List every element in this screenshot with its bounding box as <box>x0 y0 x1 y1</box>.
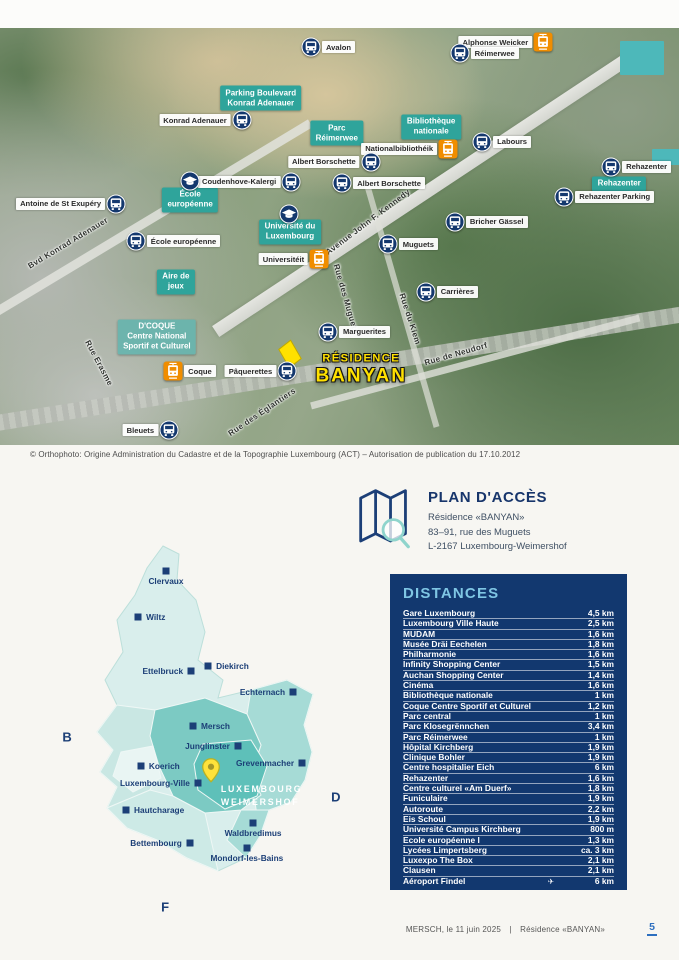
stop-label: Muguets <box>399 238 438 250</box>
highlight-line2: WEIMERSHOF <box>221 796 303 809</box>
distance-value: 1,2 km <box>568 702 614 711</box>
distance-row: Clausen2,1 km <box>403 866 614 876</box>
distance-value: 1,9 km <box>568 794 614 803</box>
distance-row: Centre culturel «Am Duerf»1,8 km <box>403 784 614 794</box>
distance-place: Musée Dräi Eechelen <box>403 640 568 649</box>
distance-value: 1,3 km <box>568 836 614 845</box>
distance-row: Parc Klosegrënnchen3,4 km <box>403 722 614 732</box>
city-label: Grevenmacher <box>236 758 294 768</box>
distance-row: Funiculaire1,9 km <box>403 794 614 804</box>
city-square-icon <box>188 667 195 674</box>
city-label: Mondorf-les-Bains <box>210 853 283 863</box>
school-stop-icon <box>280 204 299 223</box>
distance-place: Parc Klosegrënnchen <box>403 722 568 731</box>
city-label: Koerich <box>149 761 180 771</box>
distance-place: Luxexpo The Box <box>403 856 568 865</box>
residence-line1: RÉSIDENCE <box>315 352 407 364</box>
bus-stop-icon <box>555 187 574 206</box>
map-area-label: Parc Réimerwee <box>310 121 363 146</box>
stop-label: Bleuets <box>123 424 158 436</box>
aerial-map: RÉSIDENCE BANYAN AvalonAlphonse WeickerR… <box>0 28 679 445</box>
city-square-icon <box>194 779 201 786</box>
bus-stop-icon <box>278 362 297 381</box>
distance-place: Parc central <box>403 712 568 721</box>
distance-row: Luxexpo The Box2,1 km <box>403 856 614 866</box>
city-label: Bettembourg <box>130 838 182 848</box>
city-square-icon <box>135 614 142 621</box>
distance-place: Eis Schoul <box>403 815 568 824</box>
city-square-icon <box>162 568 169 575</box>
bus-stop-icon <box>126 232 145 251</box>
distance-place: Funiculaire <box>403 794 568 803</box>
bus-stop-icon <box>602 157 621 176</box>
distance-value: 1,8 km <box>568 640 614 649</box>
stop-label: Albert Borschette <box>288 156 360 168</box>
distance-row: Aéroport Findel✈6 km <box>403 877 614 887</box>
city-label: Wiltz <box>146 612 165 622</box>
address-line: 83–91, rue des Muguets <box>428 526 567 541</box>
distance-value: 6 km <box>568 763 614 772</box>
city-label: Luxembourg-Ville <box>120 778 190 788</box>
distance-place: Gare Luxembourg <box>403 609 568 618</box>
distance-row: Cinéma1,6 km <box>403 681 614 691</box>
plan-access-title: PLAN D'ACCÈS <box>428 489 547 506</box>
city-square-icon <box>137 762 144 769</box>
country-letter-f: F <box>161 899 169 914</box>
map-area-label: Aire de jeux <box>157 269 195 294</box>
page-number: 5 <box>647 921 657 936</box>
bus-stop-icon <box>333 174 352 193</box>
footer: MERSCH, le 11 juin 2025 | Résidence «BAN… <box>406 925 605 934</box>
bus-stop-icon <box>445 212 464 231</box>
city-label: Waldbredimus <box>225 828 282 838</box>
distance-place: Philharmonie <box>403 650 568 659</box>
city-label: Junglinster <box>185 741 230 751</box>
distance-value: 2,1 km <box>568 866 614 875</box>
stop-label: Universitéit <box>259 253 308 265</box>
distance-place: Aéroport Findel <box>403 877 548 886</box>
clipped-label <box>620 41 664 75</box>
bus-stop-icon <box>378 235 397 254</box>
map-area-label: Rehazenter <box>592 176 646 191</box>
stop-label: Réimerwee <box>471 47 519 59</box>
map-area-label: Bibliothèque nationale <box>401 114 460 139</box>
bus-stop-icon <box>107 194 126 213</box>
distances-panel: DISTANCES Gare Luxembourg4,5 kmLuxembour… <box>390 574 627 890</box>
distance-place: Infinity Shopping Center <box>403 660 568 669</box>
distance-row: Musée Dräi Eechelen1,8 km <box>403 640 614 650</box>
distance-value: 2,5 km <box>568 619 614 628</box>
city-label: Clervaux <box>148 576 183 586</box>
distance-place: Hôpital Kirchberg <box>403 743 568 752</box>
distance-place: Université Campus Kirchberg <box>403 825 568 834</box>
school-stop-icon <box>181 172 200 191</box>
page-top-margin <box>0 0 679 28</box>
bus-stop-icon <box>232 111 251 130</box>
distance-place: Clausen <box>403 866 568 875</box>
address-line: Résidence «BANYAN» <box>428 511 567 526</box>
distance-row: Philharmonie1,6 km <box>403 650 614 660</box>
highlight-line1: LUXEMBOURG <box>221 783 303 796</box>
distance-row: Lycées Limpertsbergca. 3 km <box>403 846 614 856</box>
residence-line2: BANYAN <box>315 365 407 387</box>
city-square-icon <box>250 819 257 826</box>
distance-value: 6 km <box>568 877 614 886</box>
city-label: Ettelbruck <box>143 666 184 676</box>
distance-value: 2,2 km <box>568 805 614 814</box>
distance-row: Parc central1 km <box>403 712 614 722</box>
distance-place: Bibliothèque nationale <box>403 691 568 700</box>
stop-label: Antoine de St Exupéry <box>16 198 105 210</box>
highlight-label: LUXEMBOURG WEIMERSHOF <box>221 783 303 809</box>
stop-label: Marguerites <box>339 326 390 338</box>
distance-row: Centre hospitalier Eich6 km <box>403 763 614 773</box>
footer-residence: Résidence «BANYAN» <box>520 925 605 934</box>
distance-value: 1 km <box>568 691 614 700</box>
stop-label: École européenne <box>147 235 220 247</box>
distance-row: Gare Luxembourg4,5 km <box>403 609 614 619</box>
footer-date: MERSCH, le 11 juin 2025 <box>406 925 501 934</box>
map-area-label: Parking Boulevard Konrad Adenauer <box>220 86 302 111</box>
brochure-page: RÉSIDENCE BANYAN AvalonAlphonse WeickerR… <box>0 0 679 960</box>
luxembourg-map: LUXEMBOURG WEIMERSHOF ClervauxWiltzEttel… <box>55 540 365 925</box>
distance-place: Parc Réimerwee <box>403 733 568 742</box>
stop-label: Rehazenter <box>622 161 671 173</box>
city-square-icon <box>243 845 250 852</box>
city-square-icon <box>205 662 212 669</box>
distance-row: Clinique Bohler1,9 km <box>403 753 614 763</box>
city-label: Echternach <box>240 687 285 697</box>
distance-row: Bibliothèque nationale1 km <box>403 691 614 701</box>
distance-place: Autoroute <box>403 805 568 814</box>
distance-value: 1,4 km <box>568 671 614 680</box>
distances-title: DISTANCES <box>403 585 614 602</box>
distance-value: 1,9 km <box>568 753 614 762</box>
distance-place: Centre hospitalier Eich <box>403 763 568 772</box>
distance-value: 1,9 km <box>568 815 614 824</box>
distance-value: 1,6 km <box>568 681 614 690</box>
stop-label: Labours <box>493 136 531 148</box>
distance-value: 1 km <box>568 733 614 742</box>
bus-stop-icon <box>450 44 469 63</box>
tram-stop-icon <box>439 139 458 158</box>
footer-separator: | <box>509 925 511 934</box>
country-letter-d: D <box>331 790 340 805</box>
distance-place: Coque Centre Sportif et Culturel <box>403 702 568 711</box>
distance-row: Hôpital Kirchberg1,9 km <box>403 743 614 753</box>
stop-label: Coudenhove-Kalergi <box>198 176 280 188</box>
location-pin-icon <box>201 758 220 783</box>
distance-row: Autoroute2,2 km <box>403 805 614 815</box>
distance-place: Luxembourg Ville Haute <box>403 619 568 628</box>
distance-row: Infinity Shopping Center1,5 km <box>403 660 614 670</box>
country-outline <box>55 540 365 925</box>
city-square-icon <box>234 742 241 749</box>
distance-row: Université Campus Kirchberg800 m <box>403 825 614 835</box>
stop-label: Carrières <box>437 286 478 298</box>
city-square-icon <box>290 689 297 696</box>
stop-label: Rehazenter Parking <box>575 191 654 203</box>
tram-stop-icon <box>310 250 329 269</box>
bus-stop-icon <box>473 132 492 151</box>
distance-place: Ecole européenne I <box>403 836 568 845</box>
distance-value: 1,9 km <box>568 743 614 752</box>
distance-place: MUDAM <box>403 630 568 639</box>
country-letter-b: B <box>62 730 71 745</box>
distance-value: 4,5 km <box>568 609 614 618</box>
address-block: Résidence «BANYAN» 83–91, rue des Muguet… <box>428 511 567 555</box>
distance-row: Auchan Shopping Center1,4 km <box>403 671 614 681</box>
distance-place: Auchan Shopping Center <box>403 671 568 680</box>
distance-value: 1,6 km <box>568 630 614 639</box>
city-square-icon <box>299 759 306 766</box>
distance-value: ca. 3 km <box>568 846 614 855</box>
city-label: Diekirch <box>216 661 249 671</box>
city-label: Hautcharage <box>134 805 184 815</box>
plane-icon: ✈ <box>548 877 554 886</box>
city-label: Mersch <box>201 721 230 731</box>
distance-row: Coque Centre Sportif et Culturel1,2 km <box>403 702 614 712</box>
stop-label: Konrad Adenauer <box>159 114 230 126</box>
distance-row: Rehazenter1,6 km <box>403 774 614 784</box>
distance-place: Clinique Bohler <box>403 753 568 762</box>
street-label: Rue des Églantiers <box>227 386 298 438</box>
distance-row: Eis Schoul1,9 km <box>403 815 614 825</box>
bus-stop-icon <box>282 172 301 191</box>
map-area-label: École européenne <box>162 187 218 212</box>
distance-value: 800 m <box>568 825 614 834</box>
bus-stop-icon <box>160 421 179 440</box>
bus-stop-icon <box>361 152 380 171</box>
distance-place: Rehazenter <box>403 774 568 783</box>
distance-place: Centre culturel «Am Duerf» <box>403 784 568 793</box>
distance-row: Luxembourg Ville Haute2,5 km <box>403 619 614 629</box>
distance-value: 3,4 km <box>568 722 614 731</box>
street-label: Rue Erasme <box>83 339 115 388</box>
city-square-icon <box>186 839 193 846</box>
distance-value: 2,1 km <box>568 856 614 865</box>
distance-value: 1,8 km <box>568 784 614 793</box>
stop-label: Bricher Gässel <box>466 216 528 228</box>
residence-banyan-label: RÉSIDENCE BANYAN <box>315 352 407 387</box>
bus-stop-icon <box>318 322 337 341</box>
distance-value: 1,6 km <box>568 650 614 659</box>
distance-value: 1,6 km <box>568 774 614 783</box>
distance-place: Lycées Limpertsberg <box>403 846 568 855</box>
distance-value: 1,5 km <box>568 660 614 669</box>
city-square-icon <box>189 722 196 729</box>
bus-stop-icon <box>301 38 320 57</box>
distance-value: 1 km <box>568 712 614 721</box>
tram-stop-icon <box>164 362 183 381</box>
distance-row: MUDAM1,6 km <box>403 630 614 640</box>
stop-label: Avalon <box>322 41 355 53</box>
map-area-label: D'COQUE Centre National Sportif et Cultu… <box>118 319 197 354</box>
distance-place: Cinéma <box>403 681 568 690</box>
stop-label: Albert Borschette <box>353 177 425 189</box>
orthophoto-credit: © Orthophoto: Origine Administration du … <box>30 450 520 459</box>
distances-table: Gare Luxembourg4,5 kmLuxembourg Ville Ha… <box>403 609 614 887</box>
city-square-icon <box>122 806 129 813</box>
bus-stop-icon <box>416 282 435 301</box>
address-line: L-2167 Luxembourg-Weimershof <box>428 540 567 555</box>
distance-row: Parc Réimerwee1 km <box>403 733 614 743</box>
stop-label: Pâquerettes <box>225 365 276 377</box>
tram-stop-icon <box>534 33 553 52</box>
stop-label: Coque <box>184 365 216 377</box>
